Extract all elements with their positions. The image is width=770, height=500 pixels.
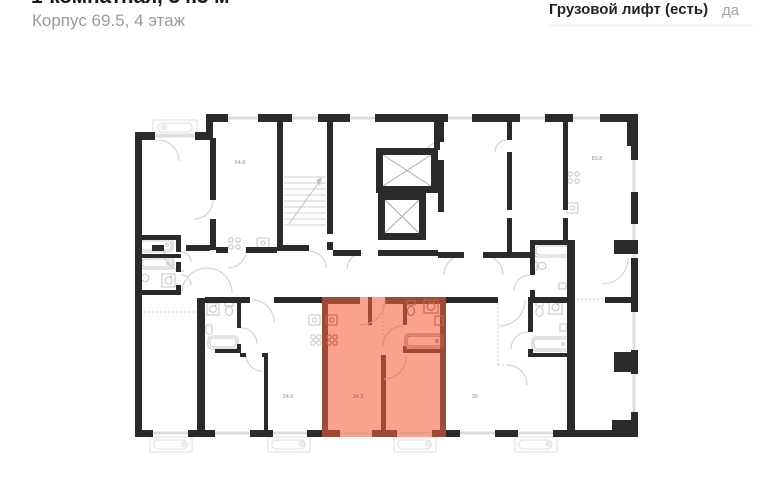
apartment-area-label: 34.6 <box>283 394 294 400</box>
bathtub-icon <box>532 337 571 351</box>
apartment-34-6[interactable]: 34.6 <box>283 394 294 400</box>
kitchen-sink-icon <box>257 238 269 248</box>
washing-machine-icon <box>207 303 219 315</box>
kitchen-sink-icon <box>309 315 320 325</box>
washing-machine-icon <box>162 274 175 287</box>
floor-plan[interactable]: 34.3 64.8 83.8 34.6 35 <box>0 0 770 500</box>
elevator-shaft-2 <box>378 193 426 240</box>
sink-icon <box>560 324 567 331</box>
balcony-bottom-1 <box>150 437 192 452</box>
stairwell <box>284 177 326 225</box>
stair-arrow <box>289 182 319 224</box>
bathtub-icon <box>534 244 571 257</box>
apartment-83-8[interactable]: 83.8 <box>592 156 603 162</box>
apartment-area-label: 64.8 <box>235 160 246 166</box>
balcony-bottom-4 <box>515 437 557 452</box>
sink-icon <box>206 325 212 334</box>
balcony-top <box>153 120 197 134</box>
kitchen-sink-icon <box>567 203 578 213</box>
stove-icon <box>229 238 240 249</box>
highlighted-apartment-34-3[interactable]: 34.3 <box>322 297 446 437</box>
stove-icon <box>311 335 321 345</box>
apartment-64-8[interactable]: 64.8 <box>235 160 246 166</box>
toilet-icon <box>536 302 543 317</box>
apartment-area-label: 35 <box>472 394 478 400</box>
apartment-area-label: 83.8 <box>592 156 603 162</box>
apartment-area-label: 34.3 <box>353 394 364 400</box>
stove-icon <box>568 172 579 183</box>
balcony-bottom-3 <box>394 437 436 452</box>
bathtub-icon <box>140 257 174 269</box>
apartment-35[interactable]: 35 <box>472 394 478 400</box>
sink-icon <box>559 283 566 289</box>
elevator-shaft-1 <box>376 148 438 193</box>
balcony-bottom-2 <box>268 437 310 452</box>
bathtub-icon <box>208 336 238 349</box>
toilet-icon <box>225 302 233 316</box>
